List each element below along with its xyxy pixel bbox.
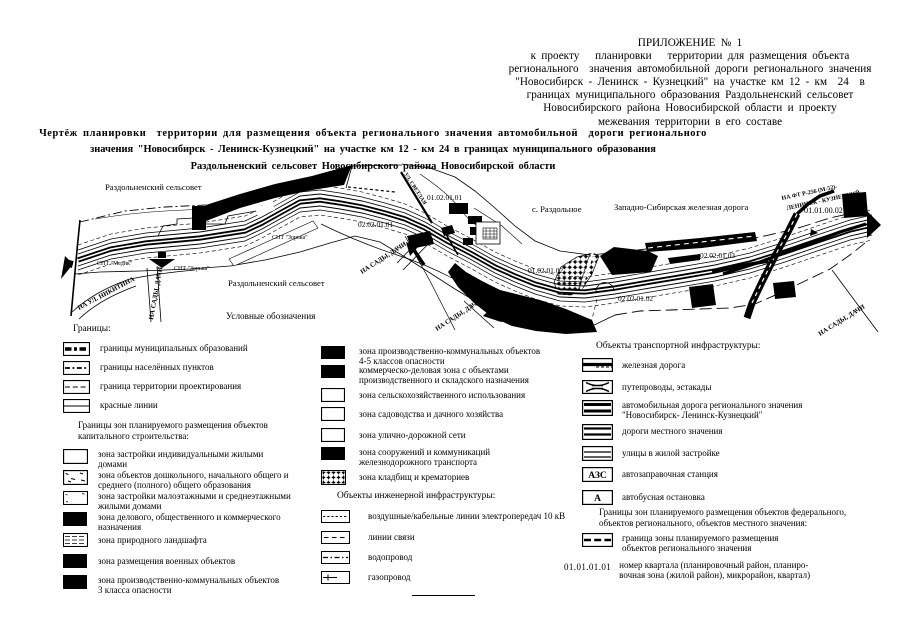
svg-text:НА САДЫ, ДАЧИ: НА САДЫ, ДАЧИ [434,297,483,332]
svg-text:Условные обозначения: Условные обозначения [226,311,316,321]
svg-text:Раздольненский сельсовет: Раздольненский сельсовет [228,278,325,288]
svg-text:02.02.01.03: 02.02.01.03 [700,251,735,260]
svg-text:с. Раздольное: с. Раздольное [532,204,582,214]
svg-text:02.02.01.01: 02.02.01.01 [358,220,393,229]
svg-text:Западно-Сибирская железная дор: Западно-Сибирская железная дорога [614,202,748,212]
svg-text:01.02.01.02: 01.02.01.02 [528,266,563,275]
svg-text:02.02.01.02: 02.02.01.02 [618,294,653,303]
svg-text:А: А [594,494,601,504]
svg-text:НА УЛ. НИКИТИНА: НА УЛ. НИКИТИНА [77,276,136,312]
svg-text:01.01.00.02: 01.01.00.02 [804,206,843,215]
svg-text:СНТ "Медик": СНТ "Медик" [97,261,133,267]
svg-text:НА САДЫ, ДАЧИ: НА САДЫ, ДАЧИ [359,240,408,275]
svg-text:01.02.01.01: 01.02.01.01 [427,193,462,202]
svg-text:СНТ "Зорька": СНТ "Зорька" [174,266,210,272]
svg-text:УЛ. СВЕТЛАЯ: УЛ. СВЕТЛАЯ [402,172,427,206]
svg-text:НА САДЫ, ДАЧИ: НА САДЫ, ДАЧИ [817,303,867,338]
svg-text:АЗС: АЗС [588,471,607,481]
svg-text:НА САДЫ, ДАЧИ: НА САДЫ, ДАЧИ [148,266,164,321]
svg-text:СНТ "Зорька": СНТ "Зорька" [272,235,308,241]
svg-text:Раздольненский сельсовет: Раздольненский сельсовет [105,182,202,192]
